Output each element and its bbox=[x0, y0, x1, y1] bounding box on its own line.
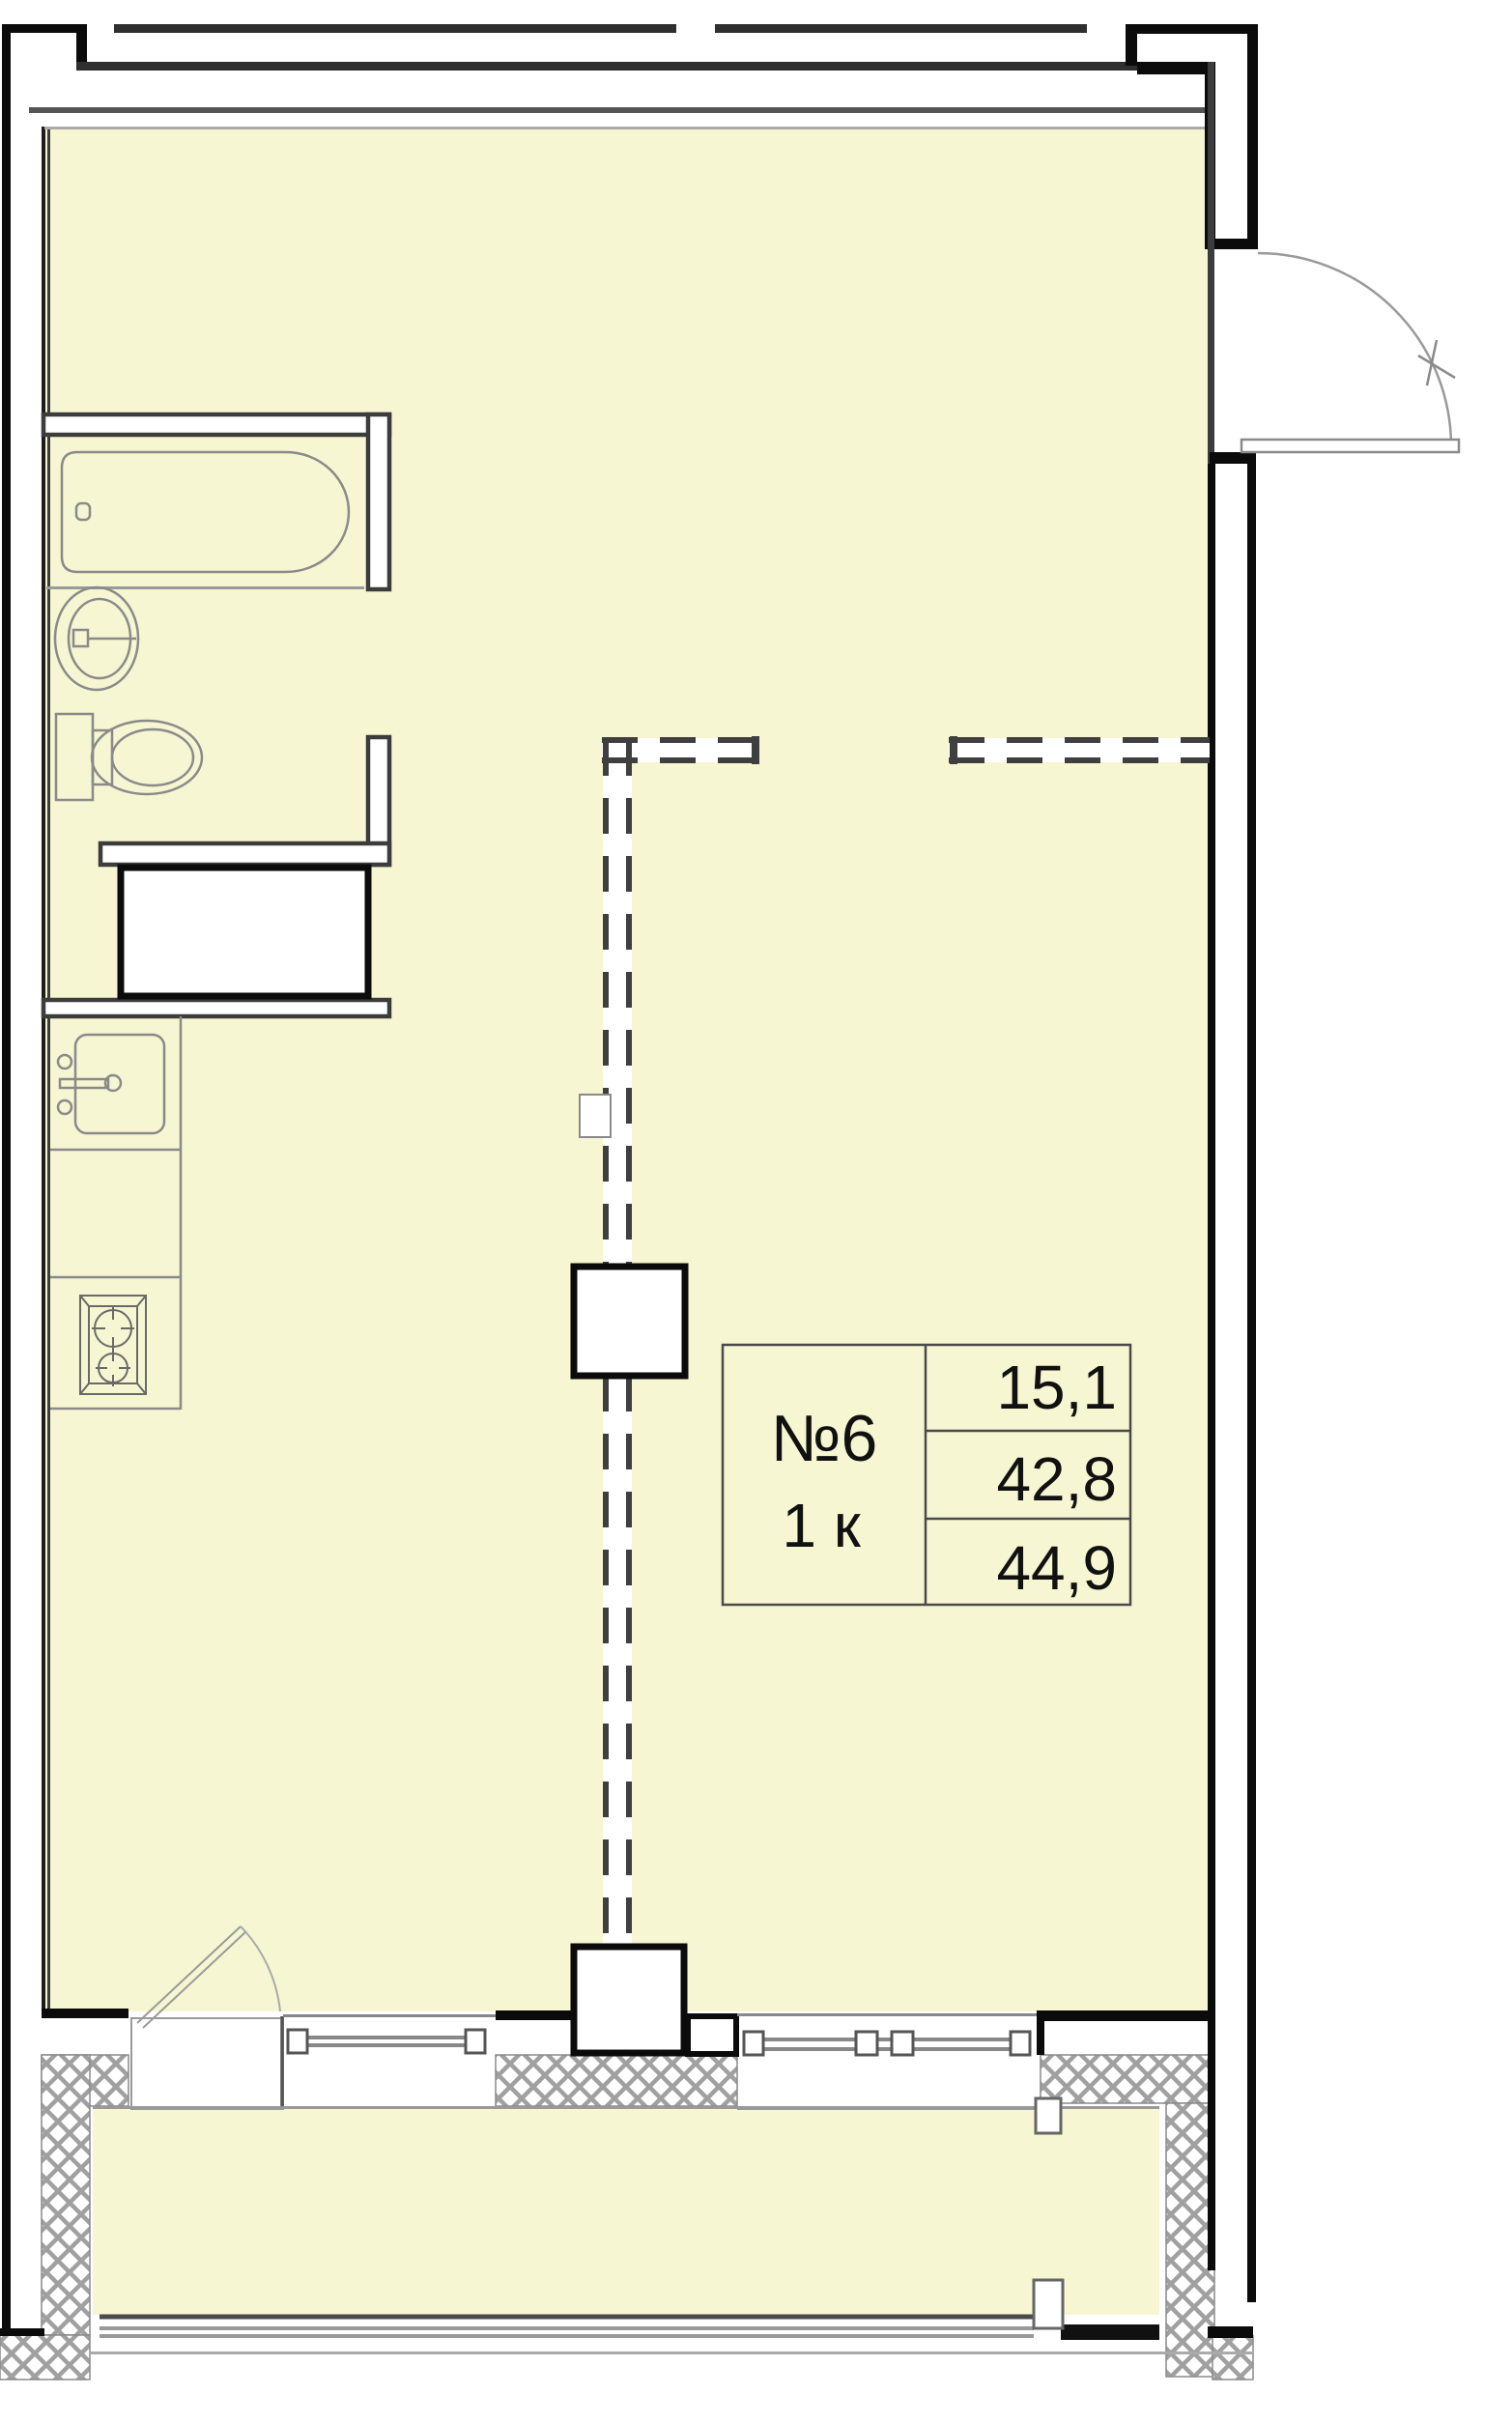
wall-top-line2 bbox=[29, 107, 1210, 113]
balcony-glazing-solid-right bbox=[1061, 2324, 1159, 2340]
bathroom-wall-partition bbox=[100, 843, 389, 865]
window-2-handle-left bbox=[744, 2032, 763, 2055]
window-2 bbox=[737, 2013, 1037, 2110]
area-living: 15,1 bbox=[996, 1353, 1117, 1422]
glazing-post-upper bbox=[1036, 2098, 1061, 2133]
wall-top-left-step bbox=[2, 24, 87, 33]
bathroom-wall-bottom bbox=[43, 1000, 389, 1016]
window-1-handle-left bbox=[288, 2030, 307, 2053]
bathroom-wall-right-upper bbox=[368, 414, 389, 589]
window-1-handle-right bbox=[466, 2030, 485, 2053]
window-2-handle-mid1 bbox=[856, 2032, 877, 2055]
wall-top-left-step-down bbox=[76, 29, 87, 66]
partition-door-tab bbox=[580, 1095, 611, 1137]
unit-number: №6 bbox=[771, 1402, 878, 1475]
hatched-wall-right-top bbox=[1041, 2055, 1214, 2103]
window-2-glazing bbox=[746, 2039, 1027, 2049]
bathroom-wall-top bbox=[43, 414, 389, 435]
wall-top-edge bbox=[44, 127, 1212, 129]
wall-bottom-c-cap bbox=[1037, 2010, 1044, 2055]
column bbox=[574, 1267, 685, 1376]
unit-rooms: 1 к bbox=[782, 1491, 861, 1560]
ventilation-shaft bbox=[121, 868, 368, 996]
wall-left-bottom-cap bbox=[0, 2328, 44, 2336]
hatched-wall-bottom-left-corner bbox=[0, 2335, 90, 2380]
area-total: 42,8 bbox=[996, 1444, 1117, 1514]
balcony-outer-edge bbox=[89, 2352, 1253, 2354]
wall-left-inner2 bbox=[47, 127, 50, 2011]
entry-door-swing-arc bbox=[1258, 253, 1451, 446]
floor-plan: №6 1 к 15,1 42,8 44,9 bbox=[0, 0, 1512, 2423]
wall-bottom-a bbox=[42, 2009, 128, 2018]
balcony-door-threshold bbox=[131, 2018, 283, 2109]
wall-left-inner bbox=[42, 127, 45, 2011]
hatched-wall-center bbox=[496, 2055, 737, 2106]
hatched-wall-left-side bbox=[42, 2055, 90, 2335]
entry-door bbox=[1241, 253, 1459, 452]
wall-right-lower bbox=[1208, 452, 1256, 2338]
wall-left-outer bbox=[2, 24, 11, 2333]
pier bbox=[574, 1947, 684, 2053]
window-2-handle-right bbox=[1011, 2032, 1030, 2055]
pier-block bbox=[688, 2016, 736, 2054]
window-2-handle-mid2 bbox=[892, 2032, 913, 2055]
unit-label-box: №6 1 к 15,1 42,8 44,9 bbox=[723, 1345, 1130, 1605]
wall-bottom-b bbox=[496, 2010, 573, 2020]
floor-plan-drawing: №6 1 к 15,1 42,8 44,9 bbox=[0, 0, 1512, 2423]
top-dashed-line bbox=[114, 24, 1087, 33]
hatched-wall-bottom-right-corner bbox=[1212, 2336, 1253, 2380]
hatched-wall-right-side bbox=[1166, 2103, 1214, 2377]
glazing-post-lower bbox=[1034, 2280, 1063, 2328]
window-1-glazing bbox=[292, 2038, 483, 2045]
balcony-floor bbox=[93, 2109, 1159, 2315]
entry-door-leaf bbox=[1241, 440, 1459, 452]
wall-bottom-c bbox=[1037, 2010, 1214, 2021]
area-overall: 44,9 bbox=[996, 1533, 1117, 1603]
balcony-inner-edge bbox=[93, 2106, 1159, 2109]
wall-top-line1 bbox=[76, 62, 1139, 71]
